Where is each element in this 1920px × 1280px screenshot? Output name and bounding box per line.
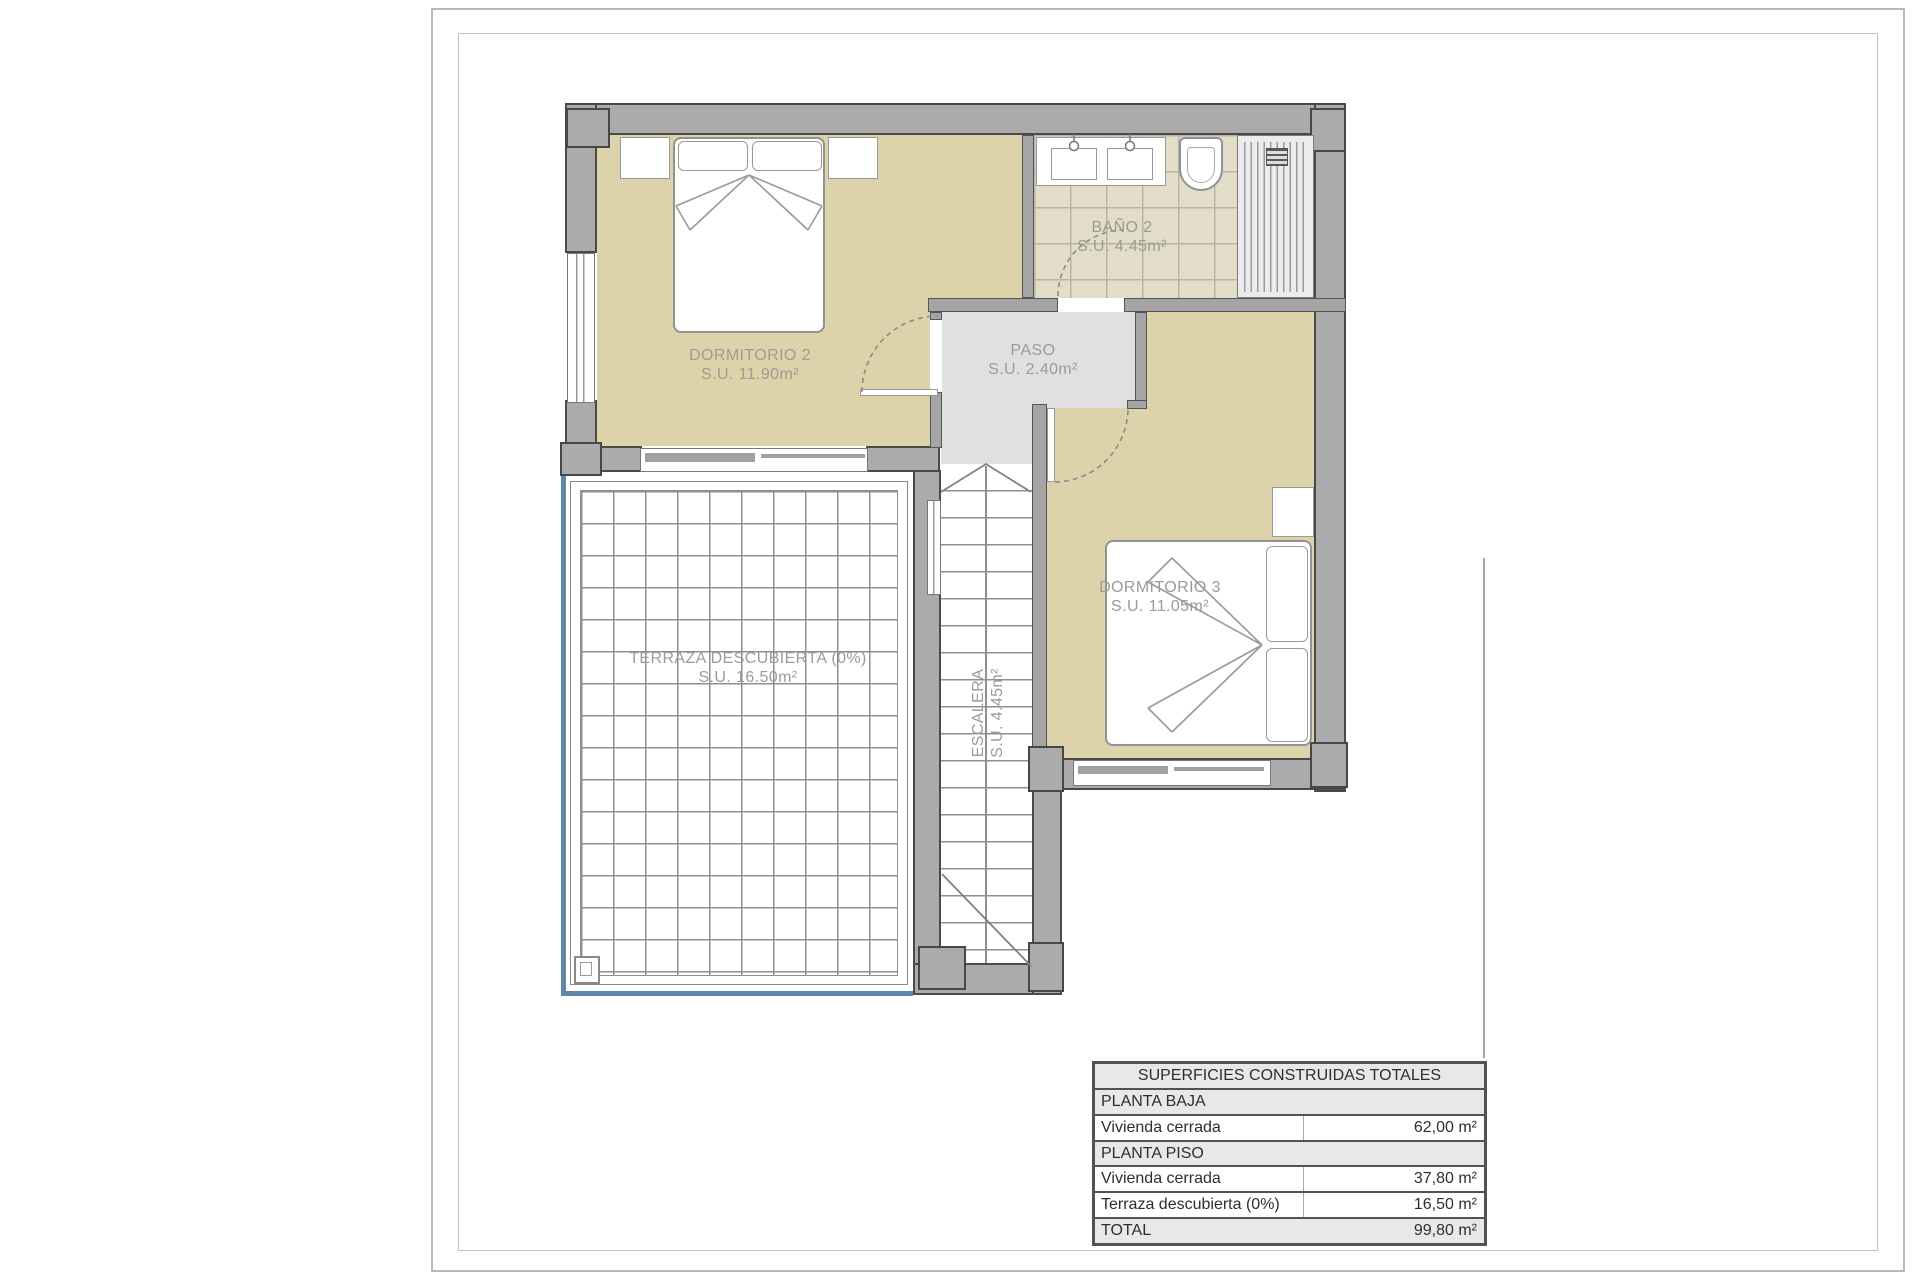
room-label-bano2: BAÑO 2 S.U. 4.45m² <box>1077 218 1167 256</box>
pillow-icon <box>752 141 822 171</box>
wall-stair-dorm3 <box>1032 404 1047 758</box>
door-leaf-dorm3 <box>1047 408 1055 482</box>
pillow-icon <box>1266 648 1308 742</box>
window-sill-band <box>1174 767 1264 771</box>
table-title: SUPERFICIES CONSTRUIDAS TOTALES <box>1138 1067 1441 1085</box>
table-title-row: SUPERFICIES CONSTRUIDAS TOTALES <box>1095 1064 1484 1088</box>
room-area: S.U. 11.05m² <box>1099 597 1221 616</box>
corner-top-right <box>1310 108 1346 152</box>
table-data-row: Vivienda cerrada 37,80 m² <box>1095 1165 1484 1191</box>
sink-icon <box>1107 148 1153 180</box>
toilet-icon <box>1179 137 1223 191</box>
terrace-drain-inner <box>580 962 592 976</box>
room-name: DORMITORIO 2 <box>689 346 811 365</box>
section-label: PLANTA BAJA <box>1101 1093 1206 1111</box>
wall-dorm2-bottom-right <box>866 446 940 472</box>
pillow-icon <box>678 141 748 171</box>
room-label-paso: PASO S.U. 2.40m² <box>988 341 1078 379</box>
table-total-row: TOTAL 99,80 m² <box>1095 1217 1484 1243</box>
pillow-icon <box>1266 546 1308 642</box>
room-label-dormitorio2: DORMITORIO 2 S.U. 11.90m² <box>689 346 811 384</box>
row-value: 37,80 m² <box>1303 1167 1484 1191</box>
room-area: S.U. 4.45m² <box>1077 237 1167 256</box>
window-dorm3-bottom <box>1073 760 1271 786</box>
terrace-railing-bottom <box>561 991 913 996</box>
window-stair-left <box>927 500 941 595</box>
wall-dorm2-bottom-stub <box>597 446 642 472</box>
room-label-dormitorio3: DORMITORIO 3 S.U. 11.05m² <box>1099 578 1221 616</box>
section-label: PLANTA PISO <box>1101 1145 1204 1163</box>
door-leaf-dorm2 <box>860 389 938 396</box>
window-sill-band <box>761 454 865 458</box>
nightstand-icon <box>828 137 878 179</box>
table-section-row: PLANTA PISO <box>1095 1140 1484 1166</box>
wall-dorm2-paso-lower <box>930 392 942 448</box>
room-label-escalera: ESCALERA S.U. 4.45m² <box>969 668 1007 758</box>
floor-stair-landing <box>941 404 1032 464</box>
wall-dorm3-top-jamb <box>1127 400 1147 409</box>
wall-right <box>1314 103 1346 792</box>
corner-top-left <box>566 108 610 148</box>
wall-bano-bottom-right <box>1124 298 1346 312</box>
room-name: TERRAZA DESCUBIERTA (0%) <box>629 649 867 668</box>
nightstand-icon <box>1272 487 1314 537</box>
floor-dormitorio3-upper <box>1147 312 1314 408</box>
window-sill-band <box>645 453 755 462</box>
terrace-railing-left <box>561 470 566 996</box>
room-area: S.U. 16.50m² <box>629 668 867 687</box>
corner-dorm3-bottom-right <box>1310 742 1348 788</box>
wall-dorm2-bano <box>1022 135 1034 298</box>
room-area: S.U. 2.40m² <box>988 360 1078 379</box>
row-label: Terraza descubierta (0%) <box>1095 1196 1303 1214</box>
corner-terrace-left <box>560 442 602 476</box>
wall-dorm2-paso-upper <box>930 312 942 320</box>
room-name: BAÑO 2 <box>1077 218 1167 237</box>
drawing-sheet: DORMITORIO 2 S.U. 11.90m² BAÑO 2 S.U. 4.… <box>0 0 1920 1280</box>
row-value: 16,50 m² <box>1303 1193 1484 1217</box>
table-data-row: Terraza descubierta (0%) 16,50 m² <box>1095 1191 1484 1217</box>
room-label-terraza: TERRAZA DESCUBIERTA (0%) S.U. 16.50m² <box>629 649 867 687</box>
boundary-line <box>1483 558 1485 1058</box>
window-dorm2-left <box>567 253 595 403</box>
room-area: S.U. 11.90m² <box>689 365 811 384</box>
room-name: DORMITORIO 3 <box>1099 578 1221 597</box>
wall-bano-bottom-left <box>928 298 1058 312</box>
corner-dorm3-bottom-left <box>1028 746 1064 792</box>
room-area: S.U. 4.45m² <box>988 668 1007 758</box>
row-value: 62,00 m² <box>1303 1116 1484 1140</box>
terrace-tiles <box>580 490 898 976</box>
window-dorm2-bottom <box>640 448 868 472</box>
areas-summary-table: SUPERFICIES CONSTRUIDAS TOTALES PLANTA B… <box>1092 1061 1487 1246</box>
toilet-bowl <box>1187 147 1215 183</box>
table-section-row: PLANTA BAJA <box>1095 1088 1484 1114</box>
corner-stair-bottom-left <box>918 946 966 990</box>
wall-paso-dorm3 <box>1135 312 1147 408</box>
row-value: 99,80 m² <box>1303 1219 1484 1243</box>
row-label: Vivienda cerrada <box>1095 1119 1303 1137</box>
room-name: PASO <box>988 341 1078 360</box>
row-label: TOTAL <box>1095 1222 1303 1240</box>
window-sill-band <box>1078 766 1168 774</box>
wall-top <box>565 103 1346 135</box>
terrace-drain <box>574 956 600 984</box>
shower-drain-icon <box>1266 148 1288 166</box>
nightstand-icon <box>620 137 670 179</box>
table-data-row: Vivienda cerrada 62,00 m² <box>1095 1114 1484 1140</box>
row-label: Vivienda cerrada <box>1095 1170 1303 1188</box>
room-name: ESCALERA <box>969 668 988 758</box>
sink-icon <box>1051 148 1097 180</box>
corner-stair-bottom-right <box>1028 942 1064 992</box>
